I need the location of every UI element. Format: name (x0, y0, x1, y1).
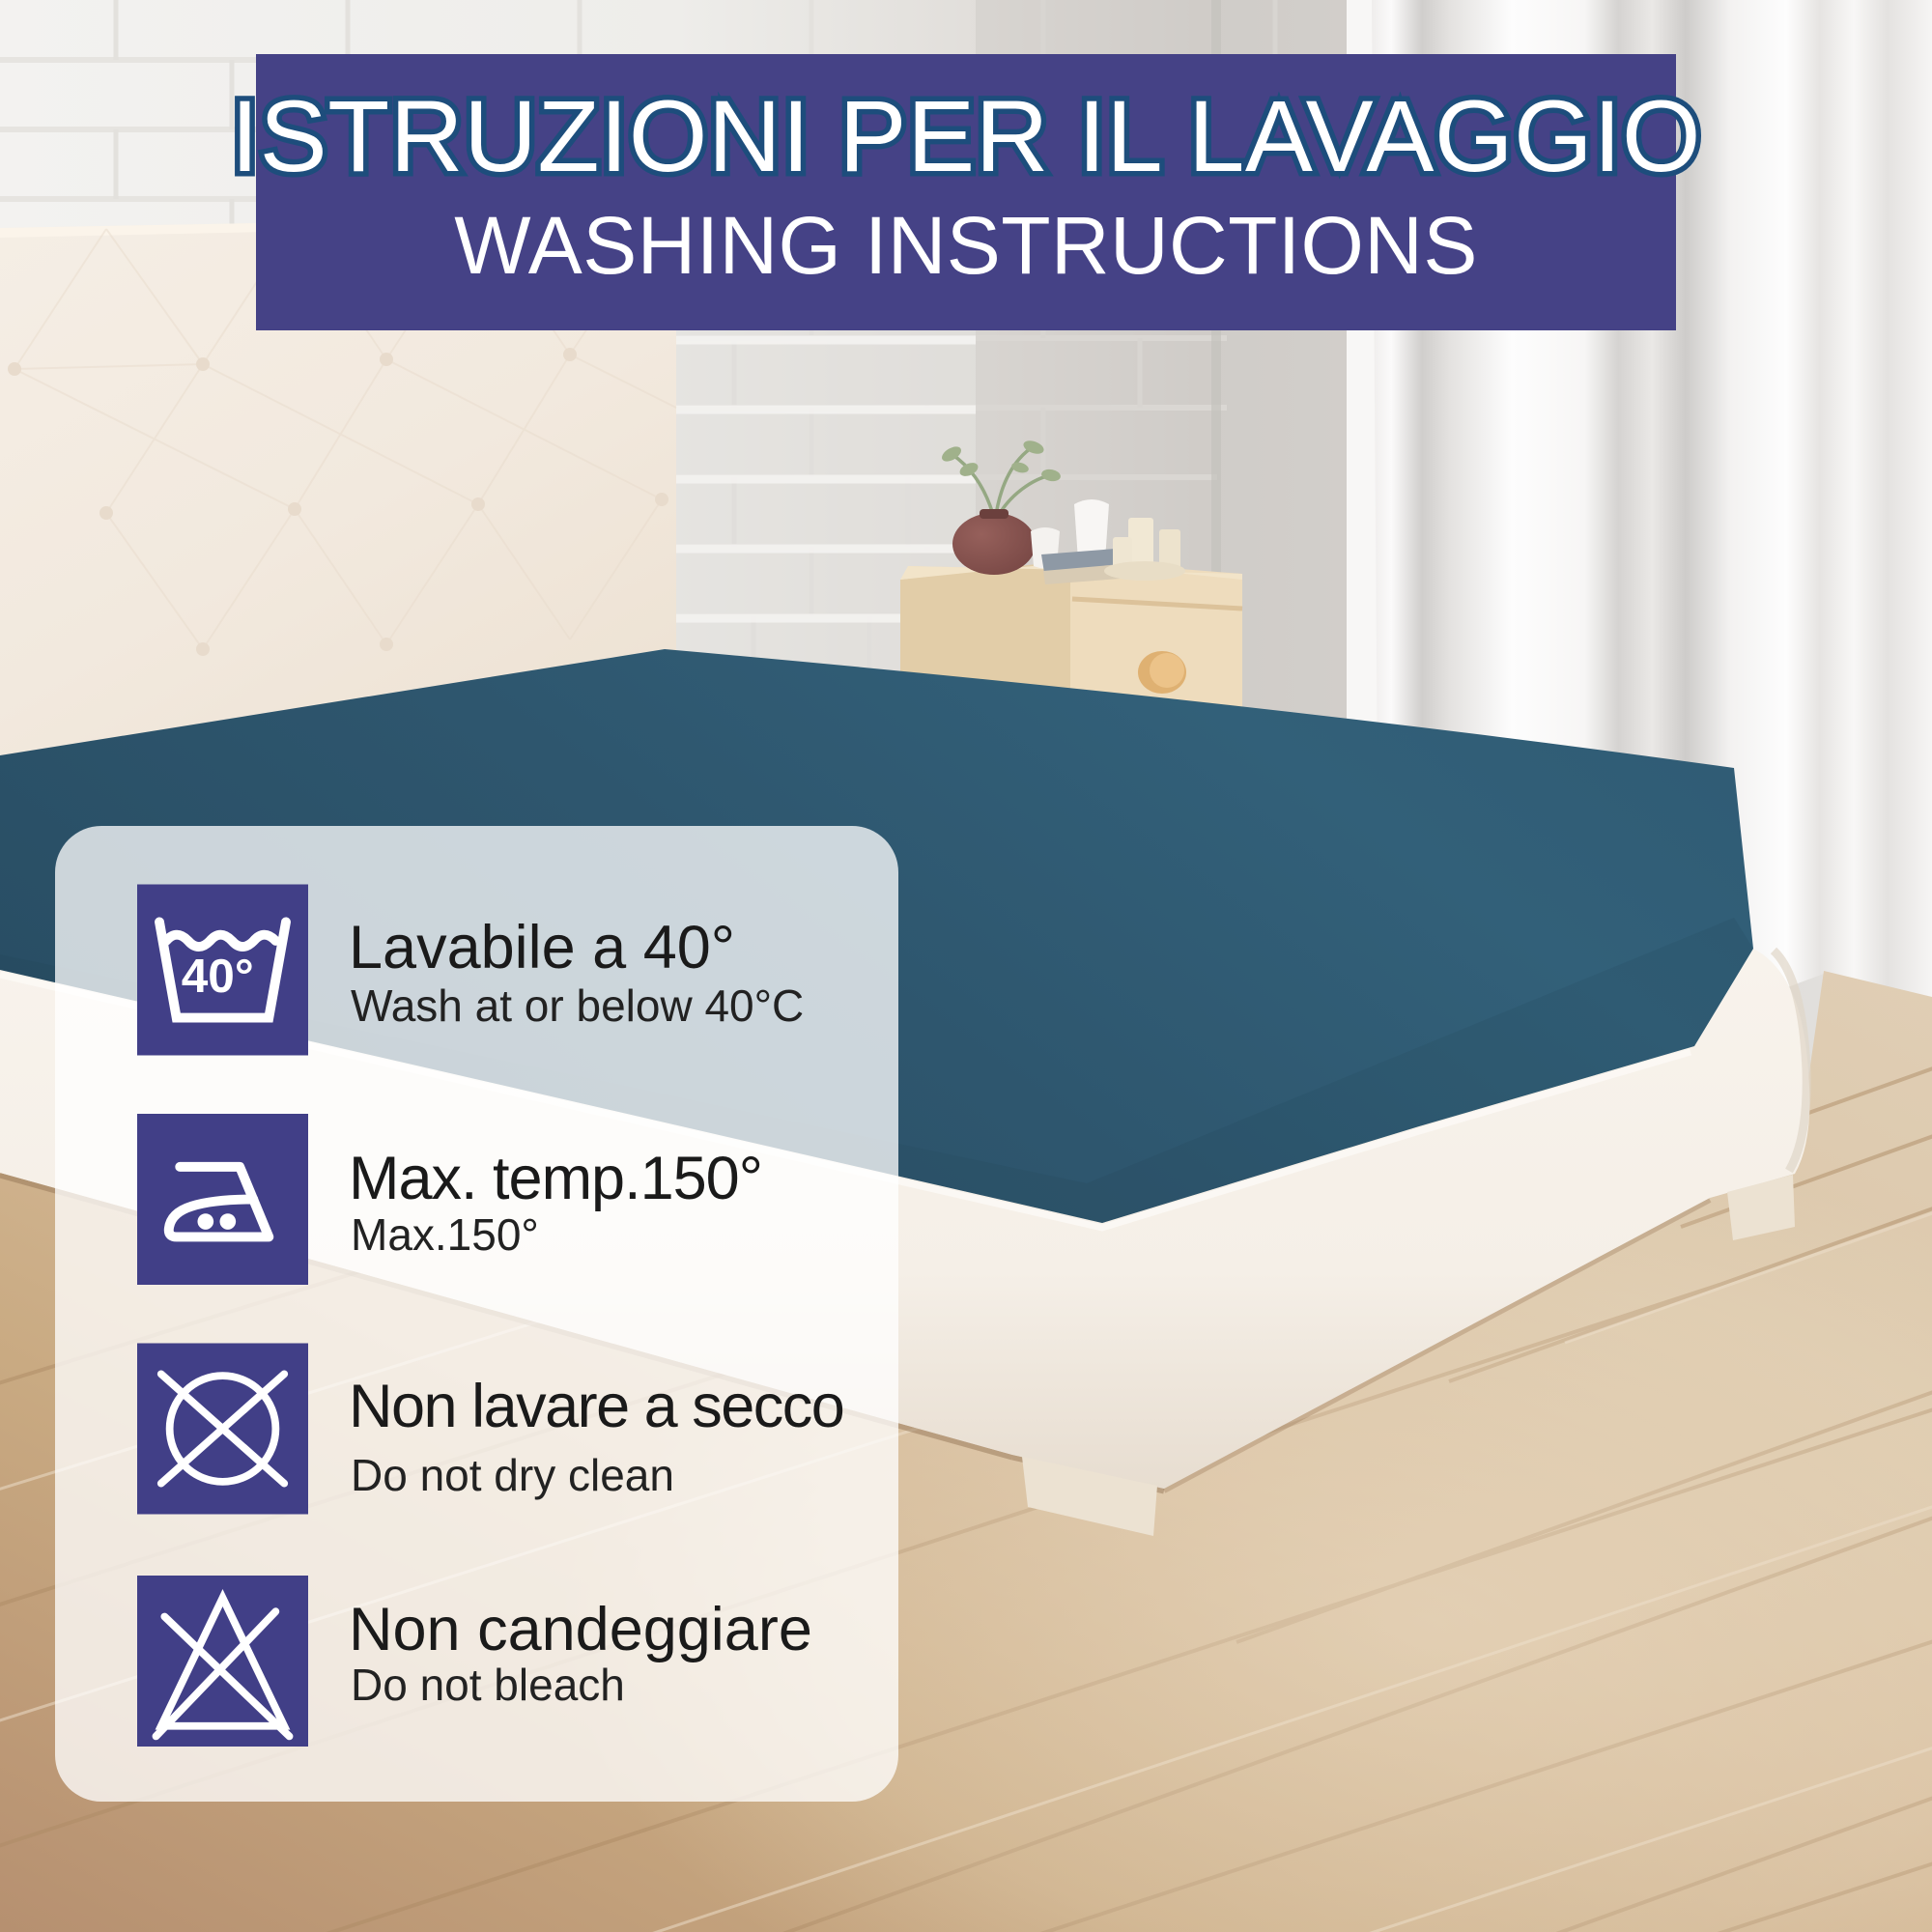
svg-text:40°: 40° (182, 949, 254, 1003)
